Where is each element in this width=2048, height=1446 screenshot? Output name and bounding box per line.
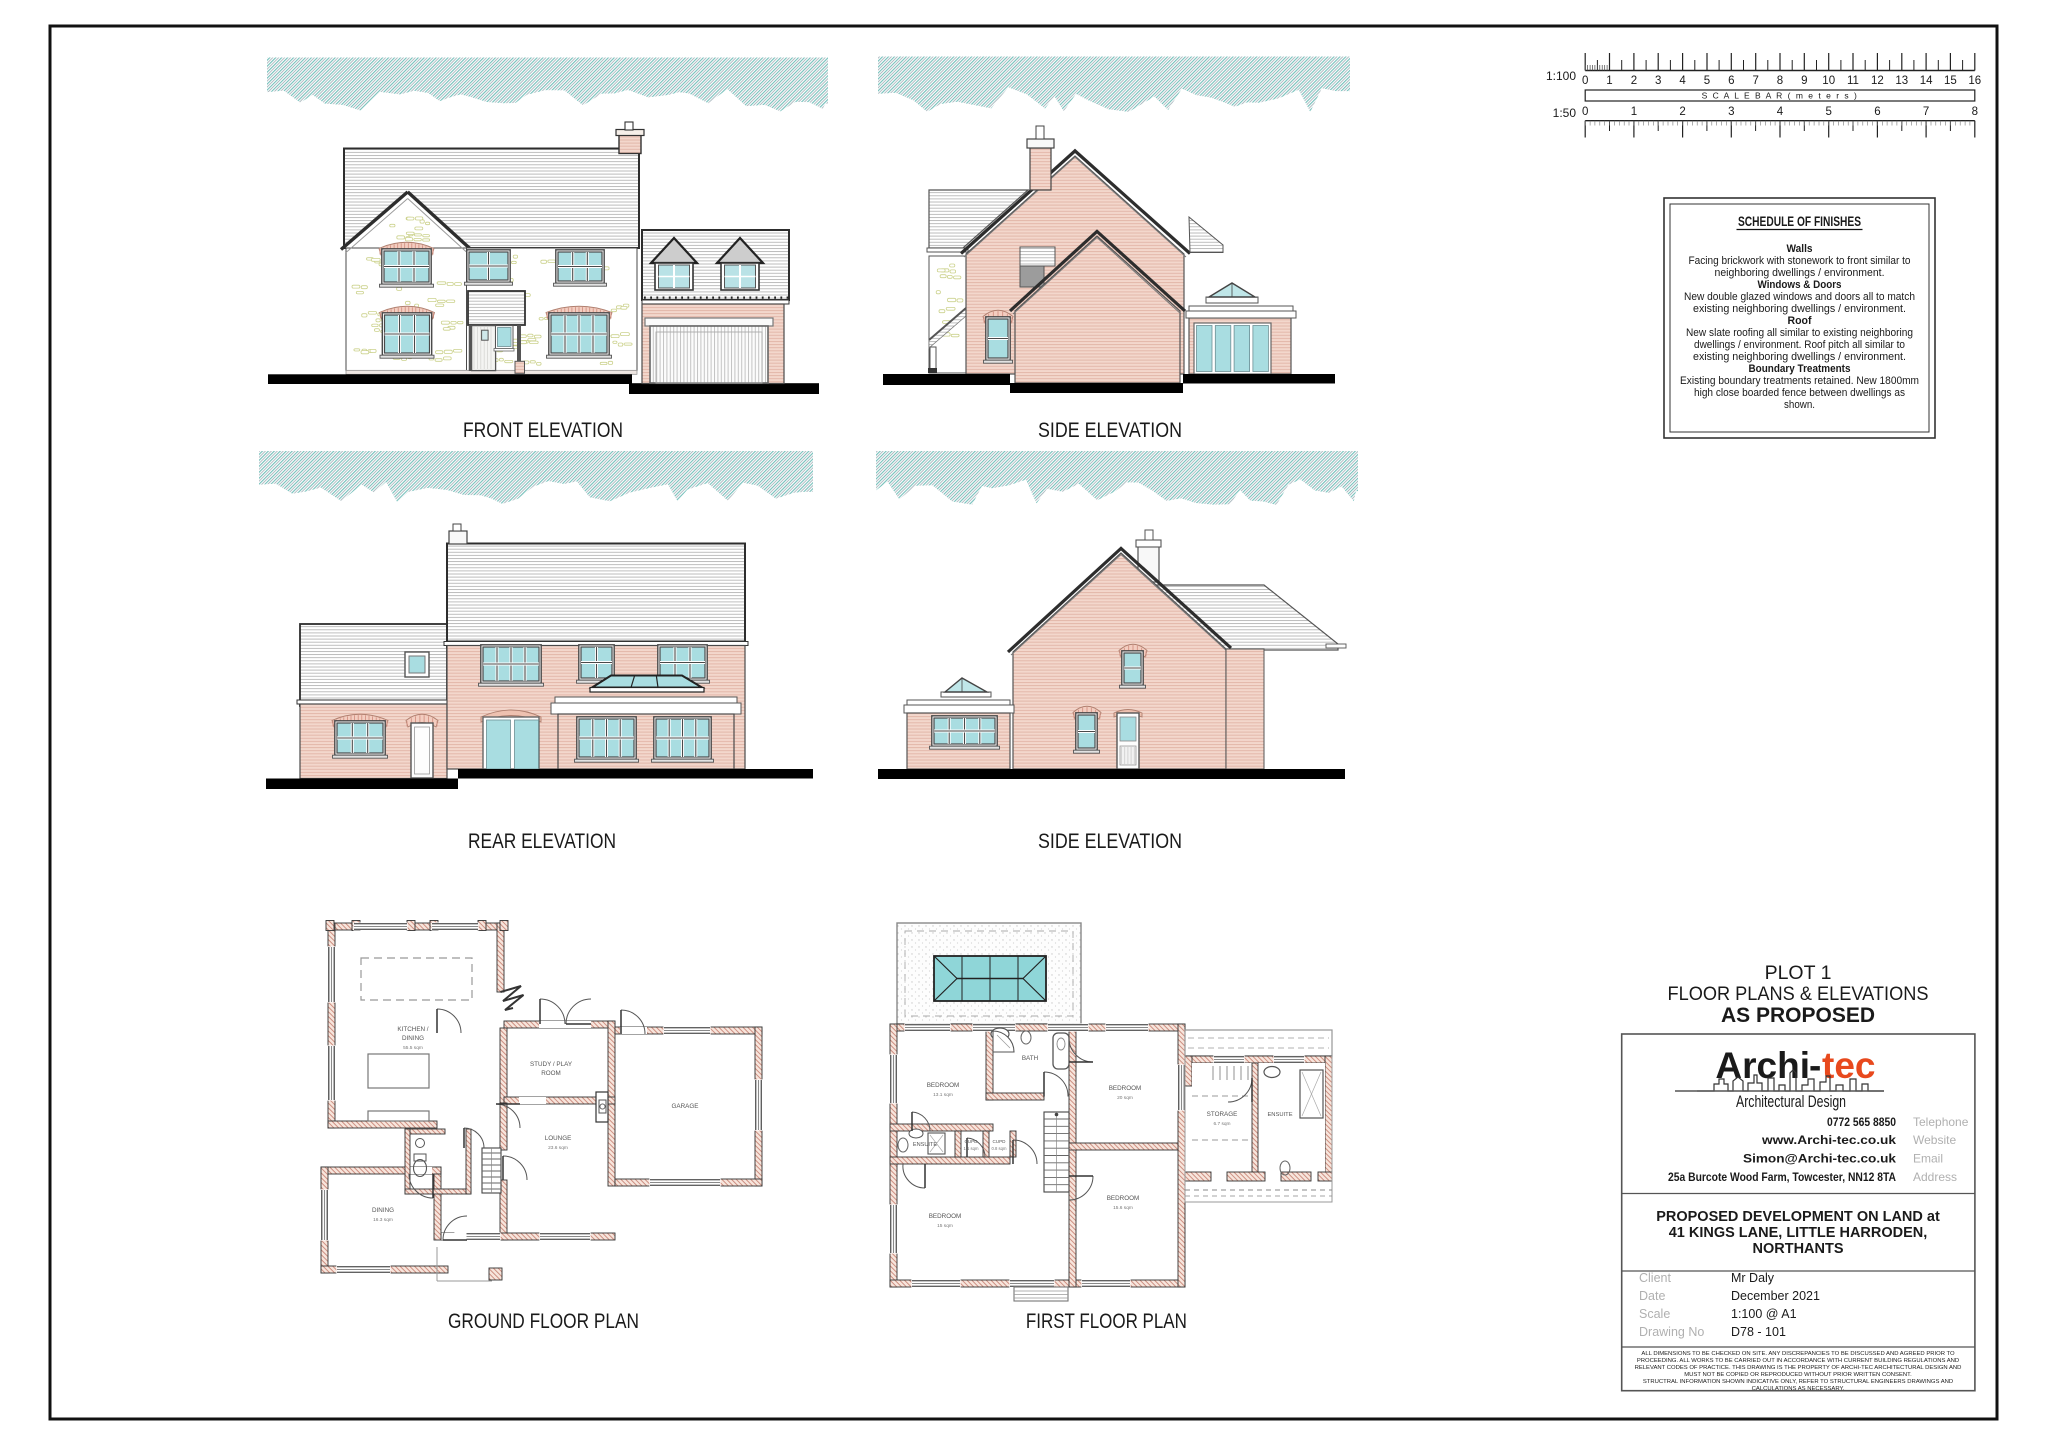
svg-text:Client: Client — [1639, 1271, 1671, 1285]
svg-text:6: 6 — [1874, 106, 1880, 118]
svg-text:CUPD: CUPD — [964, 1139, 978, 1144]
svg-text:existing neighboring dwellings: existing neighboring dwellings / environ… — [1693, 351, 1906, 363]
svg-text:5: 5 — [1825, 106, 1831, 118]
svg-text:Mr Daly: Mr Daly — [1731, 1271, 1775, 1285]
svg-text:KITCHEN /: KITCHEN / — [397, 1026, 428, 1033]
svg-text:PROCEEDING. ALL WORKS TO BE C: PROCEEDING. ALL WORKS TO BE CARRIED OUT … — [1637, 1358, 1959, 1364]
svg-text:New slate roofing all similar: New slate roofing all similar to existin… — [1686, 327, 1913, 339]
svg-text:Simon@Archi-tec.co.uk: Simon@Archi-tec.co.uk — [1743, 1152, 1896, 1166]
svg-text:DINING: DINING — [402, 1035, 424, 1042]
svg-text:7: 7 — [1923, 106, 1929, 118]
svg-text:25a Burcote Wood Farm, Towcest: 25a Burcote Wood Farm, Towcester, NN12 8… — [1668, 1172, 1896, 1184]
svg-text:55.5 sqm: 55.5 sqm — [403, 1045, 423, 1051]
svg-text:7: 7 — [1752, 75, 1758, 87]
svg-text:SIDE ELEVATION: SIDE ELEVATION — [1038, 830, 1182, 853]
svg-text:0.8 sqm: 0.8 sqm — [992, 1146, 1007, 1151]
svg-text:BEDROOM: BEDROOM — [1109, 1085, 1142, 1092]
svg-text:0: 0 — [1582, 106, 1588, 118]
svg-text:9: 9 — [1801, 75, 1807, 87]
svg-text:NORTHANTS: NORTHANTS — [1752, 1241, 1843, 1257]
svg-text:BEDROOM: BEDROOM — [927, 1082, 960, 1089]
svg-text:16: 16 — [1968, 75, 1981, 87]
svg-text:CALCULATIONS AS NECESSARY.: CALCULATIONS AS NECESSARY. — [1752, 1386, 1845, 1392]
svg-text:6.7 sqm: 6.7 sqm — [1213, 1121, 1230, 1127]
svg-text:PROPOSED DEVELOPMENT ON LAND a: PROPOSED DEVELOPMENT ON LAND at — [1656, 1209, 1940, 1225]
svg-text:ROOM: ROOM — [541, 1070, 561, 1077]
svg-text:FRONT ELEVATION: FRONT ELEVATION — [463, 419, 623, 442]
svg-text:SIDE ELEVATION: SIDE ELEVATION — [1038, 419, 1182, 442]
svg-text:8: 8 — [1777, 75, 1783, 87]
svg-text:20 sqm: 20 sqm — [1117, 1095, 1133, 1101]
svg-text:16.3 sqm: 16.3 sqm — [373, 1217, 393, 1223]
svg-text:Website: Website — [1913, 1133, 1956, 1147]
svg-text:GROUND FLOOR PLAN: GROUND FLOOR PLAN — [448, 1310, 639, 1333]
svg-text:Architectural Design: Architectural Design — [1736, 1093, 1846, 1111]
svg-text:11: 11 — [1847, 75, 1859, 87]
svg-text:FLOOR PLANS & ELEVATIONS: FLOOR PLANS & ELEVATIONS — [1668, 983, 1929, 1005]
svg-text:1.1 sqm: 1.1 sqm — [964, 1146, 979, 1151]
svg-text:New double glazed windows and: New double glazed windows and doors all … — [1684, 291, 1915, 303]
svg-text:6: 6 — [1728, 75, 1734, 87]
svg-text:AS PROPOSED: AS PROPOSED — [1721, 1004, 1875, 1027]
svg-text:CUPD: CUPD — [992, 1139, 1006, 1144]
svg-text:Existing boundary treatments r: Existing boundary treatments retained. N… — [1680, 375, 1919, 387]
svg-text:15 sqm: 15 sqm — [937, 1223, 953, 1229]
svg-text:REAR ELEVATION: REAR ELEVATION — [468, 830, 616, 853]
svg-text:0772 565 8850: 0772 565 8850 — [1827, 1115, 1896, 1129]
svg-text:BEDROOM: BEDROOM — [929, 1213, 962, 1220]
svg-text:existing neighboring dwellings: existing neighboring dwellings / environ… — [1693, 303, 1906, 315]
svg-text:high close boarded fence betwe: high close boarded fence between dwellin… — [1694, 387, 1906, 399]
svg-text:-: - — [1809, 1045, 1821, 1086]
svg-text:www.Archi-tec.co.uk: www.Archi-tec.co.uk — [1761, 1133, 1896, 1147]
svg-text:D78 - 101: D78 - 101 — [1731, 1325, 1786, 1339]
svg-text:1:100 @ A1: 1:100 @ A1 — [1731, 1307, 1797, 1321]
svg-text:Address: Address — [1913, 1170, 1957, 1184]
svg-text:ALL DIMENSIONS TO BE CHECKED O: ALL DIMENSIONS TO BE CHECKED ON SITE. AN… — [1641, 1351, 1955, 1357]
svg-text:0: 0 — [1582, 75, 1588, 87]
svg-text:STUDY / PLAY: STUDY / PLAY — [530, 1061, 573, 1068]
svg-text:5: 5 — [1704, 75, 1710, 87]
svg-text:12: 12 — [1871, 75, 1884, 87]
svg-text:shown.: shown. — [1784, 399, 1815, 411]
svg-text:December 2021: December 2021 — [1731, 1289, 1820, 1303]
svg-text:DINING: DINING — [372, 1207, 394, 1214]
svg-text:Windows & Doors: Windows & Doors — [1758, 279, 1842, 291]
svg-text:Drawing No: Drawing No — [1639, 1325, 1704, 1339]
svg-text:23.6 sqm: 23.6 sqm — [548, 1145, 568, 1151]
svg-text:41 KINGS LANE, LITTLE HARRODEN: 41 KINGS LANE, LITTLE HARRODEN, — [1669, 1225, 1928, 1241]
svg-text:4: 4 — [1777, 106, 1784, 118]
svg-text:MUST NOT BE COPIED OR REPRODUC: MUST NOT BE COPIED OR REPRODUCED WITHOUT… — [1684, 1372, 1912, 1378]
svg-text:neighboring dwellings / enviro: neighboring dwellings / environment. — [1715, 267, 1885, 279]
svg-text:4: 4 — [1679, 75, 1686, 87]
svg-text:ENSUITE: ENSUITE — [913, 1142, 938, 1148]
svg-text:BATH: BATH — [1022, 1055, 1039, 1062]
svg-text:3: 3 — [1655, 75, 1661, 87]
svg-text:STRUCTRAL INFORMATION SHOWN IN: STRUCTRAL INFORMATION SHOWN INDICATIVE O… — [1643, 1379, 1953, 1385]
svg-text:RELEVANT CODES OF PRACTICE. T: RELEVANT CODES OF PRACTICE. THIS DRAWING… — [1635, 1365, 1962, 1371]
svg-text:10: 10 — [1822, 75, 1835, 87]
svg-text:1: 1 — [1606, 75, 1612, 87]
svg-text:Roof: Roof — [1788, 315, 1812, 327]
svg-text:Walls: Walls — [1787, 243, 1813, 255]
svg-text:Date: Date — [1639, 1289, 1665, 1303]
svg-text:Facing brickwork with stonewor: Facing brickwork with stonework to front… — [1689, 255, 1911, 267]
svg-text:15: 15 — [1944, 75, 1957, 87]
svg-text:GARAGE: GARAGE — [672, 1103, 699, 1110]
svg-text:Boundary Treatments: Boundary Treatments — [1749, 363, 1851, 375]
svg-text:2: 2 — [1631, 75, 1637, 87]
svg-text:Telephone: Telephone — [1913, 1115, 1969, 1129]
svg-text:14: 14 — [1920, 75, 1933, 87]
svg-text:STORAGE: STORAGE — [1207, 1111, 1238, 1118]
svg-text:13: 13 — [1895, 75, 1908, 87]
svg-text:BEDROOM: BEDROOM — [1107, 1195, 1140, 1202]
svg-text:S C A L E B A R ( m e t e r: S C A L E B A R ( m e t e r s ) — [1702, 91, 1859, 101]
svg-text:2: 2 — [1679, 106, 1685, 118]
svg-text:1: 1 — [1631, 106, 1637, 118]
svg-text:1:50: 1:50 — [1553, 106, 1577, 120]
svg-text:PLOT 1: PLOT 1 — [1765, 962, 1832, 984]
svg-text:SCHEDULE OF FINISHES: SCHEDULE OF FINISHES — [1738, 214, 1861, 229]
svg-text:8: 8 — [1972, 106, 1978, 118]
svg-text:15.6 sqm: 15.6 sqm — [1113, 1205, 1133, 1211]
svg-text:LOUNGE: LOUNGE — [545, 1135, 572, 1142]
svg-text:Scale: Scale — [1639, 1307, 1670, 1321]
svg-text:dwellings / environment. Roof: dwellings / environment. Roof pitch all … — [1694, 339, 1905, 351]
svg-text:13.1 sqm: 13.1 sqm — [933, 1092, 953, 1098]
svg-text:1:100: 1:100 — [1546, 69, 1576, 83]
svg-text:3: 3 — [1728, 106, 1734, 118]
svg-text:Email: Email — [1913, 1152, 1943, 1166]
svg-text:ENSUITE: ENSUITE — [1267, 1112, 1292, 1118]
svg-text:FIRST FLOOR PLAN: FIRST FLOOR PLAN — [1026, 1310, 1187, 1333]
